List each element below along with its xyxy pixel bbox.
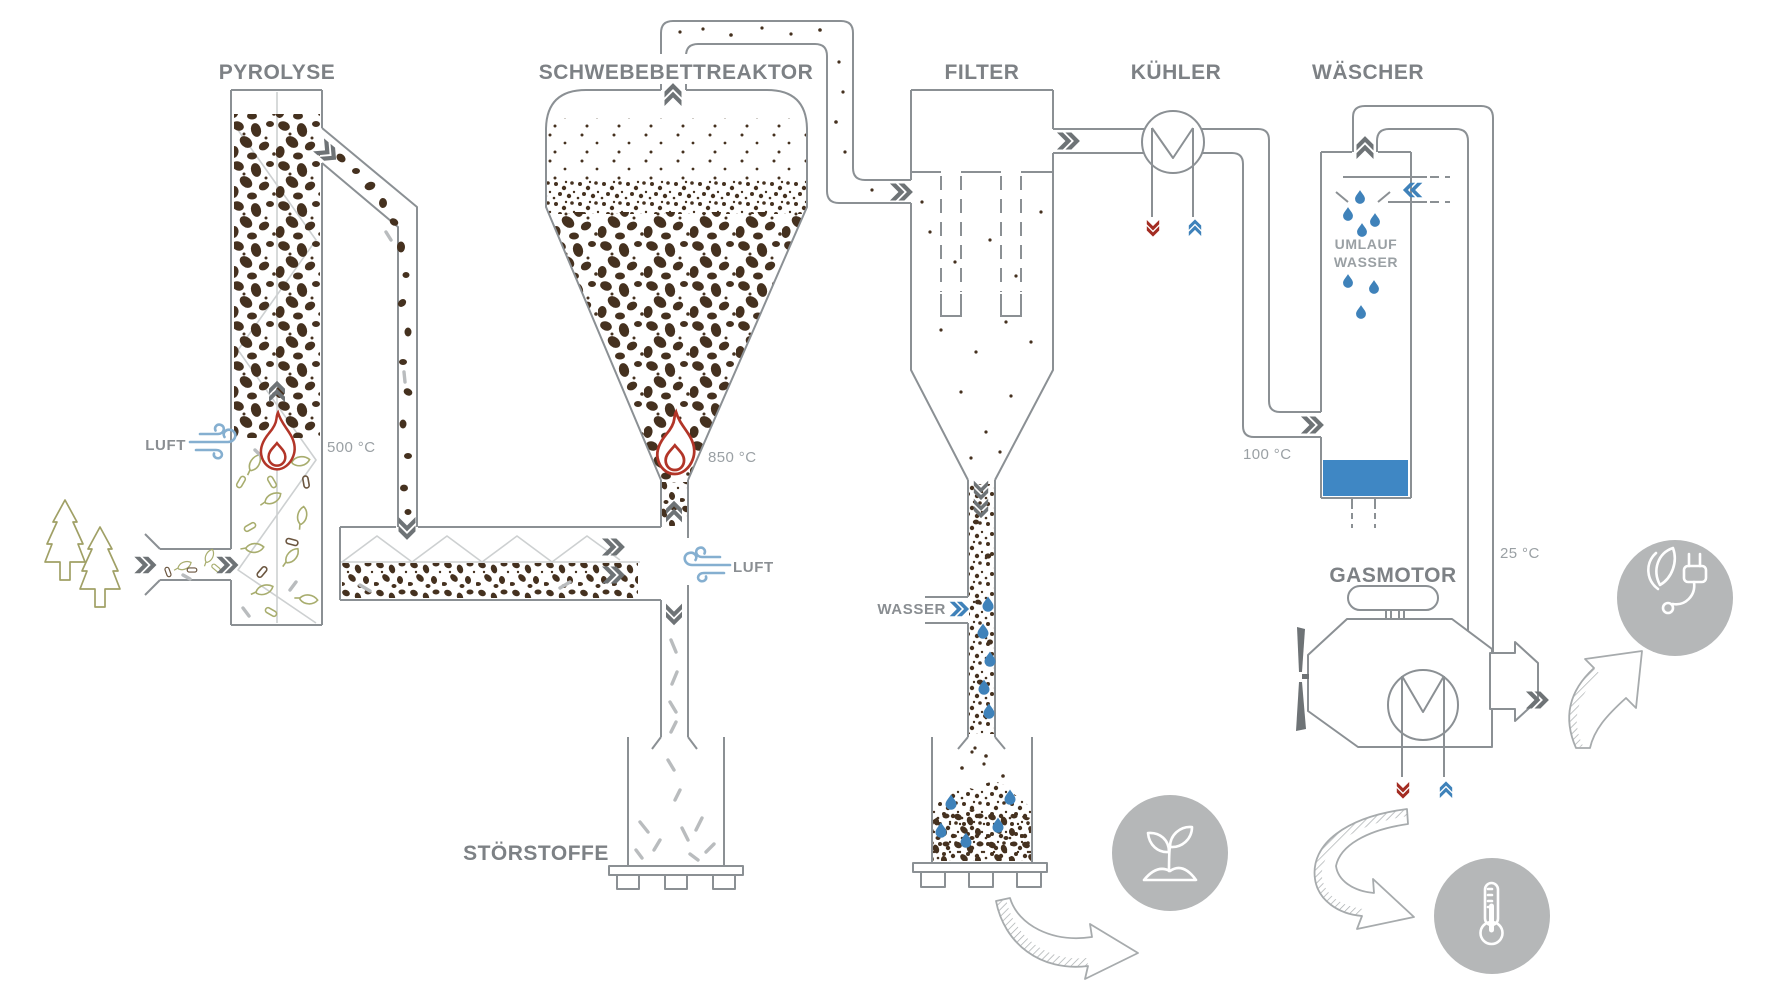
process-diagram: LUFT 500 °C PYROLYSE LUFT STÖRSTOFFE <box>0 0 1778 1000</box>
flow-chevron-icon <box>216 557 238 573</box>
reactor-unit: 850 °C SCHWEBEBETTREAKTOR <box>539 21 911 480</box>
pyrolyse-unit: LUFT 500 °C PYROLYSE <box>134 61 417 625</box>
pyrolyse-title: PYROLYSE <box>219 61 335 84</box>
biomass-trees <box>45 500 120 607</box>
stoerstoffe-bin: STÖRSTOFFE <box>463 737 743 889</box>
flow-chevron-icon <box>665 83 682 106</box>
flow-chevron-icon <box>1057 133 1080 150</box>
luft-reaktor-label: LUFT <box>733 559 774 576</box>
flow-chevron-icon <box>399 517 416 540</box>
inlet-particles <box>164 549 221 579</box>
wind-icon <box>685 548 730 582</box>
filter-unit: FILTER WASSER <box>877 61 1053 749</box>
flow-chevron-icon <box>666 604 682 626</box>
tree-icon <box>45 500 85 580</box>
reaktor-title: SCHWEBEBETTREAKTOR <box>539 61 814 84</box>
gasmotor-temperature: 25 °C <box>1500 545 1540 562</box>
char-conveyor <box>340 517 661 600</box>
flow-chevron-icon <box>890 184 913 201</box>
gas-dust-dots <box>920 200 1042 459</box>
tree-icon <box>80 527 120 607</box>
reaktor-temperature: 850 °C <box>708 449 756 466</box>
filter-dust-bin <box>913 737 1047 887</box>
umlauf-wasser-line1: UMLAUF <box>1335 236 1398 252</box>
heat-exchanger-icon <box>1388 670 1458 740</box>
engine-top-tank <box>1348 586 1438 610</box>
cooler-unit: 100 °C KÜHLER <box>1053 61 1324 463</box>
stoerstoffe-title: STÖRSTOFFE <box>463 842 609 865</box>
soil-plant-icon <box>1112 795 1228 911</box>
recirculation-chevron-icon <box>1403 183 1422 197</box>
coolant-cold-chevron-icon <box>1440 781 1452 798</box>
impurity-dashes <box>636 760 714 860</box>
filter-title: FILTER <box>945 61 1020 84</box>
flow-chevron-icon <box>134 557 156 573</box>
gasmotor-title: GASMOTOR <box>1329 564 1456 587</box>
scrubber-water-pool <box>1323 460 1408 496</box>
wasser-label: WASSER <box>877 601 946 618</box>
coolant-hot-chevron-icon <box>1397 782 1409 799</box>
green-energy-plug-icon <box>1617 540 1733 656</box>
pyrolyse-temperature: 500 °C <box>327 439 375 456</box>
thermometer-icon <box>1434 858 1550 974</box>
wind-icon <box>190 425 235 459</box>
engine-unit: GASMOTOR <box>1296 564 1549 799</box>
coolant-cold-chevron-icon <box>1189 219 1201 236</box>
output-arrow-icon <box>1490 642 1538 721</box>
coolant-hot-chevron-icon <box>1147 220 1159 237</box>
impurity-dashes <box>670 640 677 732</box>
waescher-title: WÄSCHER <box>1312 61 1424 84</box>
kuehler-title: KÜHLER <box>1131 61 1222 84</box>
flow-chevron-icon <box>1301 417 1324 434</box>
riser-junction: LUFT <box>661 480 774 737</box>
waescher-temperature: 100 °C <box>1243 446 1291 463</box>
flow-chevron-icon <box>1357 136 1374 159</box>
luft-pyrolyse-label: LUFT <box>145 437 186 454</box>
fan-icon <box>1296 627 1309 731</box>
umlauf-wasser-line2: WASSER <box>1334 254 1398 270</box>
flow-chevron-icon <box>602 539 625 556</box>
flow-chevron-icon <box>950 602 969 616</box>
